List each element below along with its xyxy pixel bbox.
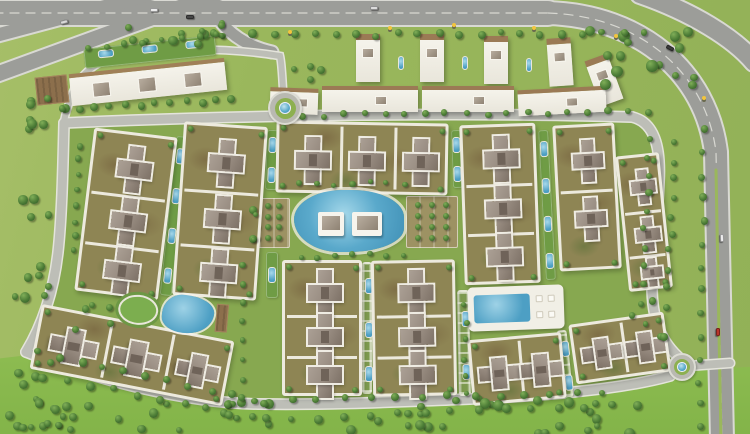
tree-icon: [314, 255, 319, 260]
tree-icon: [429, 213, 435, 219]
tree-icon: [368, 179, 373, 184]
deck-plaza: [35, 74, 70, 105]
tree-icon: [563, 261, 569, 267]
tree-icon: [670, 31, 680, 41]
tree-icon: [67, 426, 74, 433]
tree-icon: [698, 174, 705, 181]
tree-icon: [573, 328, 580, 335]
cabana: [536, 295, 543, 302]
apartment-building: [296, 137, 331, 184]
apartment-building: [580, 337, 623, 371]
lawn-oval: [117, 293, 159, 326]
clubhouse: [318, 212, 344, 236]
cabana: [548, 311, 555, 318]
tree-icon: [342, 394, 348, 400]
park-pool: [163, 267, 173, 284]
tree-icon: [422, 110, 429, 117]
villa-slab: [422, 86, 514, 112]
tree-icon: [71, 247, 77, 253]
tree-icon: [558, 30, 567, 39]
tree-icon: [19, 424, 26, 431]
tree-icon: [404, 410, 412, 418]
tree-icon: [240, 299, 246, 305]
tree-icon: [55, 422, 61, 428]
tree-icon: [401, 253, 406, 258]
tree-icon: [671, 160, 677, 166]
tree-icon: [698, 285, 705, 292]
tree-icon: [353, 265, 359, 271]
apartment-building: [208, 139, 245, 187]
tree-icon: [20, 292, 31, 303]
tree-icon: [526, 128, 532, 134]
park-pool: [546, 253, 555, 269]
tree-icon: [240, 337, 245, 342]
tree-icon: [415, 202, 421, 208]
tree-icon: [443, 202, 449, 208]
tree-icon: [405, 422, 412, 429]
deck-plaza: [215, 304, 229, 333]
tree-icon: [56, 354, 64, 362]
tree-icon: [367, 251, 372, 256]
tree-icon: [276, 203, 282, 209]
tree-icon: [115, 415, 122, 422]
tree-icon: [107, 320, 114, 327]
rooftop-unit: [183, 71, 202, 88]
apartment-building: [575, 197, 608, 240]
tree-icon: [672, 72, 679, 79]
tree-icon: [497, 393, 504, 400]
tree-icon: [125, 24, 132, 31]
apartment-building: [108, 196, 147, 246]
tree-icon: [556, 389, 563, 396]
cabana: [548, 295, 555, 302]
cabana: [536, 311, 543, 318]
tree-icon: [19, 380, 28, 389]
tree-icon: [291, 66, 297, 72]
tree-icon: [262, 414, 270, 422]
tree-icon: [249, 413, 256, 420]
tree-icon: [233, 415, 239, 421]
fountain-icon: [279, 102, 291, 114]
tree-icon: [372, 33, 379, 40]
apartment-building: [519, 353, 563, 387]
tree-icon: [312, 30, 319, 37]
tree-icon: [76, 172, 81, 177]
tree-icon: [429, 202, 435, 208]
building-cluster: [459, 123, 541, 286]
apartment-building: [399, 270, 434, 317]
tree-icon: [661, 363, 668, 370]
tree-icon: [441, 109, 448, 116]
tree-icon: [439, 423, 446, 430]
traffic-signal-icon: [452, 23, 456, 27]
tree-icon: [632, 281, 639, 288]
tree-icon: [650, 157, 657, 164]
tree-icon: [452, 397, 459, 404]
tree-icon: [45, 211, 52, 218]
tree-icon: [641, 29, 648, 36]
tree-icon: [119, 367, 127, 375]
tree-icon: [463, 129, 469, 135]
rooftop-unit: [566, 97, 578, 107]
linear-park: [266, 252, 278, 298]
tree-icon: [574, 389, 581, 396]
tree-icon: [73, 202, 80, 209]
tree-icon: [176, 285, 182, 291]
park-pool: [544, 216, 553, 232]
tree-icon: [59, 105, 66, 112]
tree-icon: [212, 96, 218, 102]
tree-icon: [27, 119, 36, 128]
tree-icon: [79, 281, 86, 288]
building-cluster: [371, 259, 457, 396]
tree-icon: [349, 181, 355, 187]
tree-icon: [688, 81, 697, 90]
apartment-building: [200, 249, 237, 297]
tree-icon: [530, 274, 536, 280]
tree-icon: [516, 30, 523, 37]
apartment-building: [111, 338, 163, 380]
tree-icon: [604, 107, 611, 114]
tree-icon: [299, 255, 304, 260]
tree-icon: [701, 125, 709, 133]
park-pool: [98, 49, 115, 59]
courtyard-fountain: [462, 56, 468, 70]
tree-icon: [695, 380, 701, 386]
tree-icon: [580, 404, 587, 411]
park-pool: [540, 141, 549, 157]
formal-garden: [406, 196, 458, 248]
villa-tower: [420, 34, 444, 82]
tree-icon: [139, 40, 145, 46]
tree-icon: [34, 348, 40, 354]
tree-icon: [663, 304, 670, 311]
tree-icon: [443, 213, 449, 219]
tree-icon: [286, 386, 292, 392]
car: [370, 6, 378, 10]
roundabout: [668, 353, 696, 381]
tree-icon: [362, 110, 368, 116]
tree-icon: [415, 235, 421, 241]
pool-complex: [467, 284, 564, 331]
apartment-building: [477, 357, 521, 391]
tree-icon: [265, 224, 271, 230]
tree-icon: [64, 377, 71, 384]
tree-icon: [527, 405, 534, 412]
tree-icon: [699, 242, 705, 248]
tree-icon: [187, 126, 193, 132]
swimming-pool: [160, 293, 215, 335]
tree-icon: [227, 95, 235, 103]
tree-icon: [402, 182, 407, 187]
car: [720, 234, 724, 242]
apartment-building: [404, 139, 439, 186]
tree-icon: [640, 225, 646, 231]
tree-icon: [605, 128, 611, 134]
tree-icon: [439, 128, 445, 134]
tree-icon: [106, 304, 113, 311]
apartment-building: [308, 352, 342, 398]
tree-icon: [199, 99, 207, 107]
apartment-building: [204, 195, 241, 243]
tree-icon: [415, 213, 421, 219]
tree-icon: [276, 214, 282, 220]
tree-icon: [45, 283, 52, 290]
tree-icon: [12, 293, 18, 299]
traffic-signal-icon: [532, 26, 536, 30]
tree-icon: [251, 237, 256, 242]
rooftop-unit: [473, 96, 485, 105]
tree-icon: [314, 415, 323, 424]
tree-icon: [182, 400, 189, 407]
tree-icon: [286, 264, 292, 270]
traffic-signal-icon: [388, 26, 392, 30]
tree-icon: [184, 97, 191, 104]
tree-icon: [90, 103, 98, 111]
walkway: [560, 189, 613, 195]
tree-icon: [76, 106, 83, 113]
tree-icon: [289, 396, 297, 404]
tree-icon: [665, 267, 671, 273]
tree-icon: [134, 392, 141, 399]
tree-icon: [671, 195, 677, 201]
tree-icon: [665, 246, 671, 252]
tree-icon: [352, 30, 360, 38]
tree-icon: [84, 402, 92, 410]
tree-icon: [443, 391, 451, 399]
tree-icon: [86, 382, 94, 390]
tree-icon: [485, 112, 492, 119]
rooftop-unit: [490, 50, 502, 60]
apartment-building: [634, 217, 662, 252]
tree-icon: [35, 272, 42, 279]
tree-icon: [644, 209, 650, 215]
tree-icon: [141, 372, 149, 380]
courtyard-fountain: [526, 58, 532, 72]
villa-tower: [356, 34, 380, 82]
apartment-building: [174, 352, 220, 390]
tree-icon: [121, 40, 127, 46]
tree-icon: [352, 387, 358, 393]
tree-icon: [698, 265, 704, 271]
tree-icon: [611, 66, 623, 78]
tree-icon: [545, 111, 551, 117]
tree-icon: [209, 388, 217, 396]
tree-icon: [461, 357, 467, 363]
tree-icon: [619, 160, 626, 167]
apartment-building: [572, 139, 605, 182]
tree-icon: [429, 235, 435, 241]
tree-icon: [655, 317, 662, 324]
apartment-building: [487, 233, 523, 280]
tree-icon: [642, 245, 649, 252]
tree-icon: [502, 404, 511, 413]
tree-icon: [624, 39, 632, 47]
tree-icon: [265, 235, 271, 241]
tree-icon: [564, 397, 574, 407]
tree-icon: [552, 337, 559, 344]
tree-icon: [616, 51, 625, 60]
tree-icon: [443, 235, 449, 241]
building-cluster: [282, 260, 362, 396]
tree-icon: [280, 125, 286, 131]
tree-icon: [51, 405, 60, 414]
tree-icon: [340, 413, 348, 421]
tree-icon: [276, 224, 282, 230]
tree-icon: [18, 195, 27, 204]
tree-icon: [265, 214, 271, 220]
tree-icon: [276, 235, 282, 241]
tree-icon: [265, 203, 271, 209]
tree-icon: [340, 110, 347, 117]
tree-icon: [197, 33, 203, 39]
traffic-signal-icon: [702, 96, 706, 100]
tree-icon: [367, 412, 374, 419]
tree-icon: [72, 232, 79, 239]
tree-icon: [156, 396, 164, 404]
tree-icon: [697, 310, 703, 316]
tree-icon: [163, 376, 170, 383]
rooftop-unit: [426, 48, 438, 58]
tree-icon: [413, 30, 421, 38]
tree-icon: [258, 132, 264, 138]
tree-icon: [239, 318, 245, 324]
tree-icon: [536, 31, 543, 38]
master-plan: [0, 0, 750, 434]
tree-icon: [697, 423, 704, 430]
tree-icon: [224, 344, 231, 351]
tree-icon: [468, 275, 474, 281]
swimming-pool: [474, 294, 531, 324]
tree-icon: [36, 262, 45, 271]
tree-icon: [446, 407, 453, 414]
tree-icon: [253, 212, 258, 217]
tree-icon: [246, 291, 252, 297]
tree-icon: [546, 391, 553, 398]
tree-icon: [168, 36, 178, 46]
tree-icon: [24, 273, 33, 282]
tree-icon: [29, 194, 39, 204]
tree-icon: [138, 102, 145, 109]
tree-icon: [461, 302, 466, 307]
tree-icon: [14, 369, 23, 378]
tree-icon: [645, 189, 652, 196]
tree-icon: [556, 129, 562, 135]
tree-icon: [97, 132, 104, 139]
tree-icon: [307, 63, 314, 70]
tree-icon: [645, 109, 652, 116]
car: [150, 8, 158, 12]
apartment-building: [350, 138, 385, 185]
tree-icon: [683, 27, 693, 37]
central-lagoon: [294, 190, 404, 252]
tree-icon: [137, 425, 146, 434]
tree-icon: [239, 262, 246, 269]
apartment-building: [484, 135, 520, 182]
traffic-signal-icon: [614, 34, 618, 38]
tree-icon: [39, 120, 48, 129]
tree-icon: [391, 393, 399, 401]
tree-icon: [346, 425, 356, 434]
tree-icon: [218, 22, 225, 29]
tree-icon: [584, 427, 592, 434]
tree-icon: [600, 79, 611, 90]
rooftop-unit: [362, 48, 374, 58]
tree-icon: [437, 186, 443, 192]
tree-icon: [646, 60, 657, 71]
apartment-building: [308, 270, 342, 316]
fountain-icon: [677, 362, 687, 372]
tree-icon: [375, 265, 381, 271]
tree-icon: [179, 35, 185, 41]
rooftop-unit: [138, 76, 157, 93]
tree-icon: [240, 281, 247, 288]
tree-icon: [401, 111, 407, 117]
roundabout: [268, 91, 302, 125]
tree-icon: [475, 406, 483, 414]
walkway: [625, 209, 661, 216]
tree-icon: [579, 373, 586, 380]
tree-icon: [105, 103, 112, 110]
tree-icon: [472, 343, 479, 350]
tree-icon: [671, 139, 677, 145]
courtyard-fountain: [398, 56, 404, 70]
tree-icon: [446, 264, 452, 270]
tree-icon: [541, 429, 549, 434]
tree-icon: [625, 108, 631, 114]
apartment-building: [115, 145, 154, 195]
apartment-building: [400, 352, 435, 399]
tree-icon: [429, 224, 435, 230]
tree-icon: [251, 398, 257, 404]
tree-icon: [213, 31, 219, 37]
tree-icon: [75, 155, 81, 161]
tree-icon: [611, 259, 617, 265]
tree-icon: [649, 297, 656, 304]
tree-icon: [464, 110, 470, 116]
tree-icon: [377, 387, 383, 393]
tree-icon: [5, 411, 14, 420]
tree-icon: [415, 224, 421, 230]
park-pool: [268, 267, 276, 283]
tree-icon: [151, 99, 158, 106]
car: [186, 15, 194, 19]
tree-icon: [38, 374, 46, 382]
tree-icon: [271, 31, 278, 38]
tree-icon: [44, 420, 50, 426]
tree-icon: [44, 309, 51, 316]
tree-icon: [699, 193, 707, 201]
tree-icon: [213, 395, 220, 402]
tree-icon: [349, 251, 355, 257]
tree-icon: [463, 373, 468, 378]
tree-icon: [260, 400, 268, 408]
tree-icon: [74, 187, 79, 192]
tree-icon: [333, 31, 340, 38]
tree-icon: [394, 409, 401, 416]
tree-icon: [624, 428, 635, 434]
rooftop-unit: [92, 81, 111, 98]
rooftop-unit: [375, 96, 387, 105]
park-pool: [267, 167, 276, 183]
tree-icon: [224, 401, 231, 408]
tree-icon: [79, 358, 87, 366]
tree-icon: [34, 360, 41, 367]
tree-icon: [166, 99, 173, 106]
tree-icon: [62, 402, 71, 411]
tree-icon: [525, 109, 532, 116]
tree-icon: [608, 401, 616, 409]
